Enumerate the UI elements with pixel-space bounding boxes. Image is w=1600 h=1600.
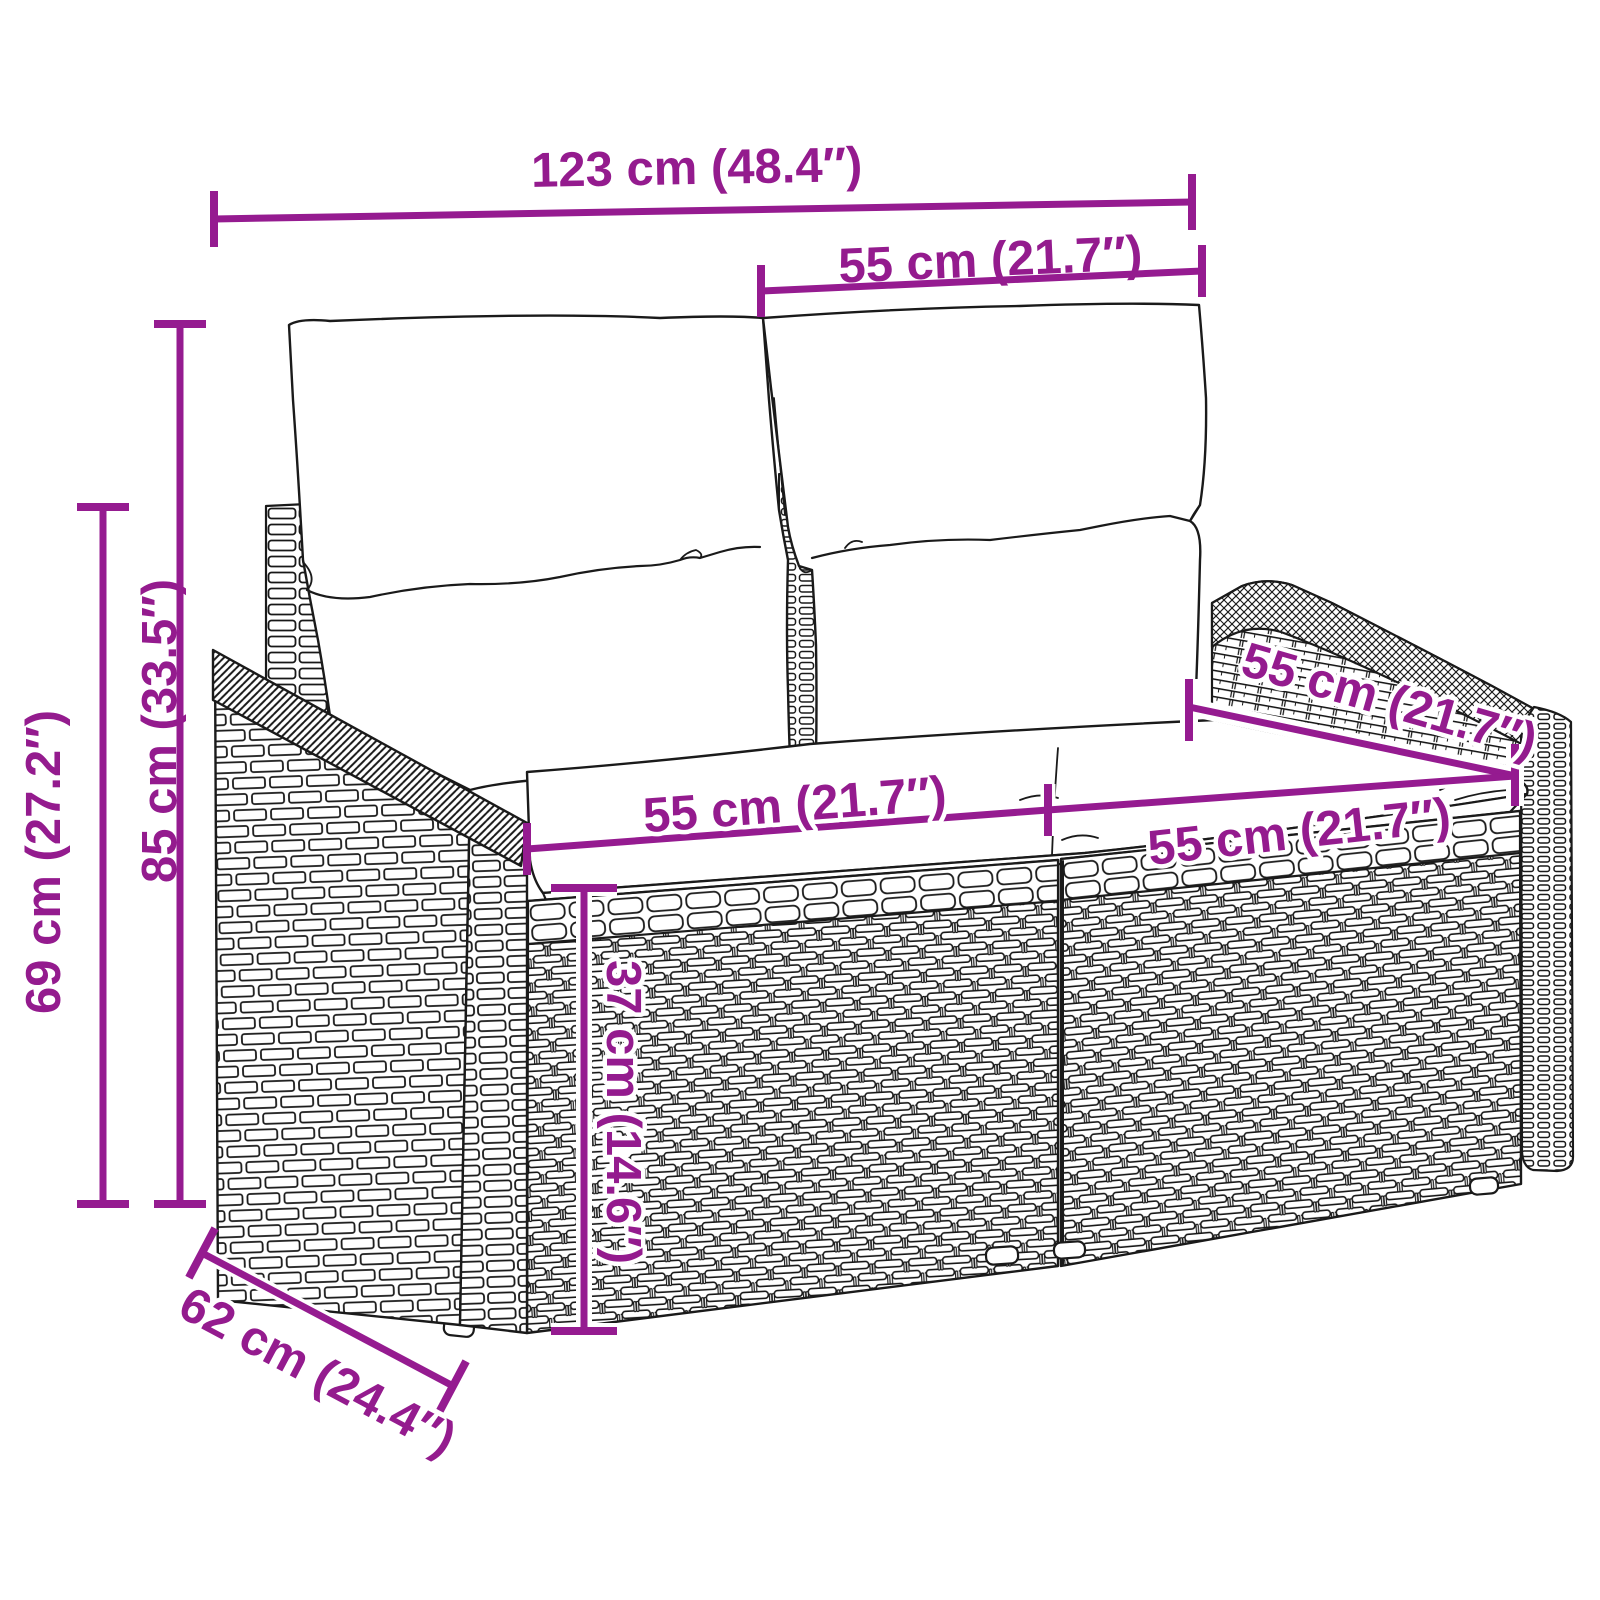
svg-text:85 cm (33.5″): 85 cm (33.5″)	[133, 579, 187, 883]
svg-text:123 cm (48.4″): 123 cm (48.4″)	[531, 138, 863, 198]
svg-text:69 cm (27.2″): 69 cm (27.2″)	[17, 710, 71, 1014]
svg-text:37 cm (14.6″): 37 cm (14.6″)	[596, 960, 650, 1264]
